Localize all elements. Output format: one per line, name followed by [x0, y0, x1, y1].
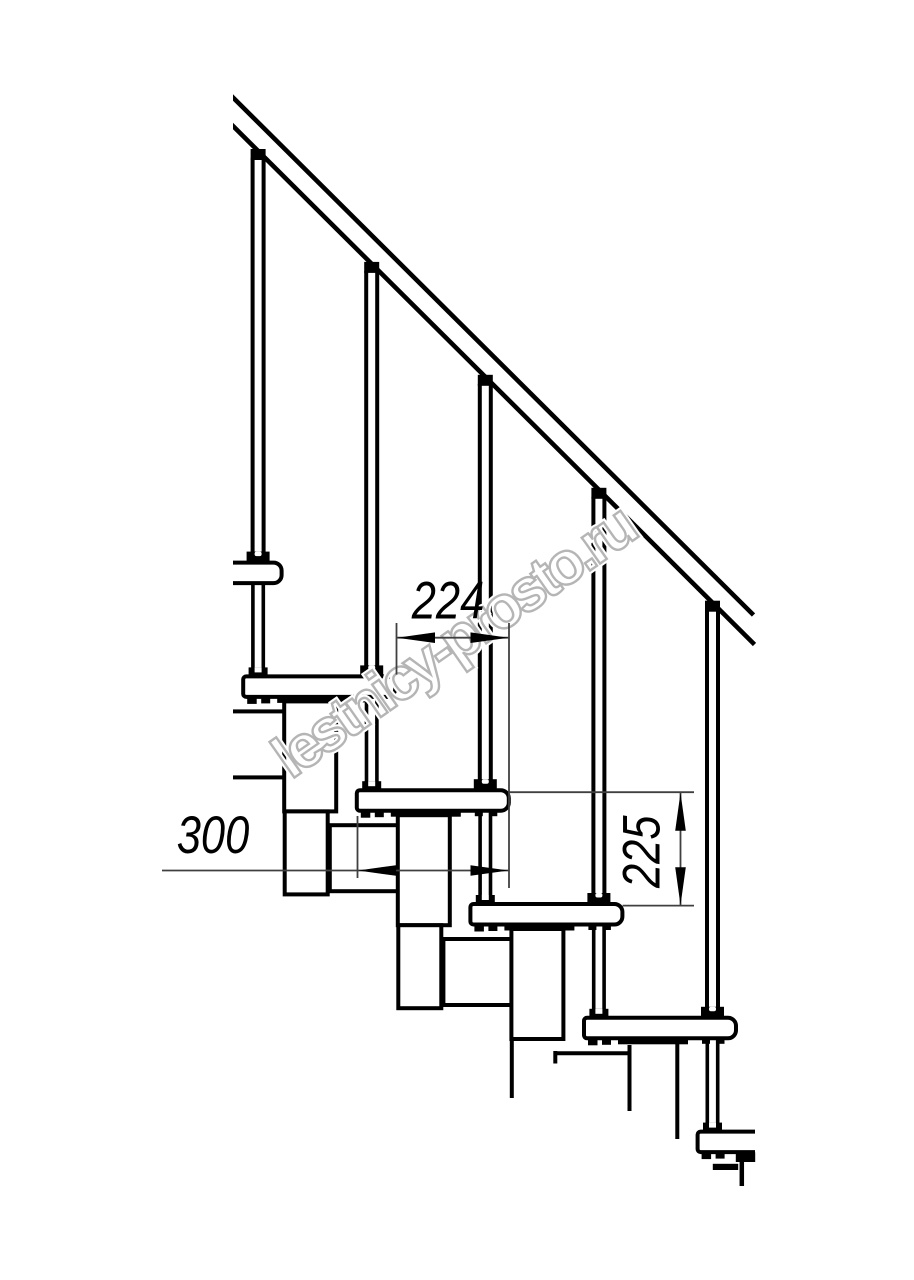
svg-text:300: 300 — [177, 806, 250, 865]
svg-text:224: 224 — [411, 571, 484, 630]
svg-text:225: 225 — [612, 815, 671, 889]
